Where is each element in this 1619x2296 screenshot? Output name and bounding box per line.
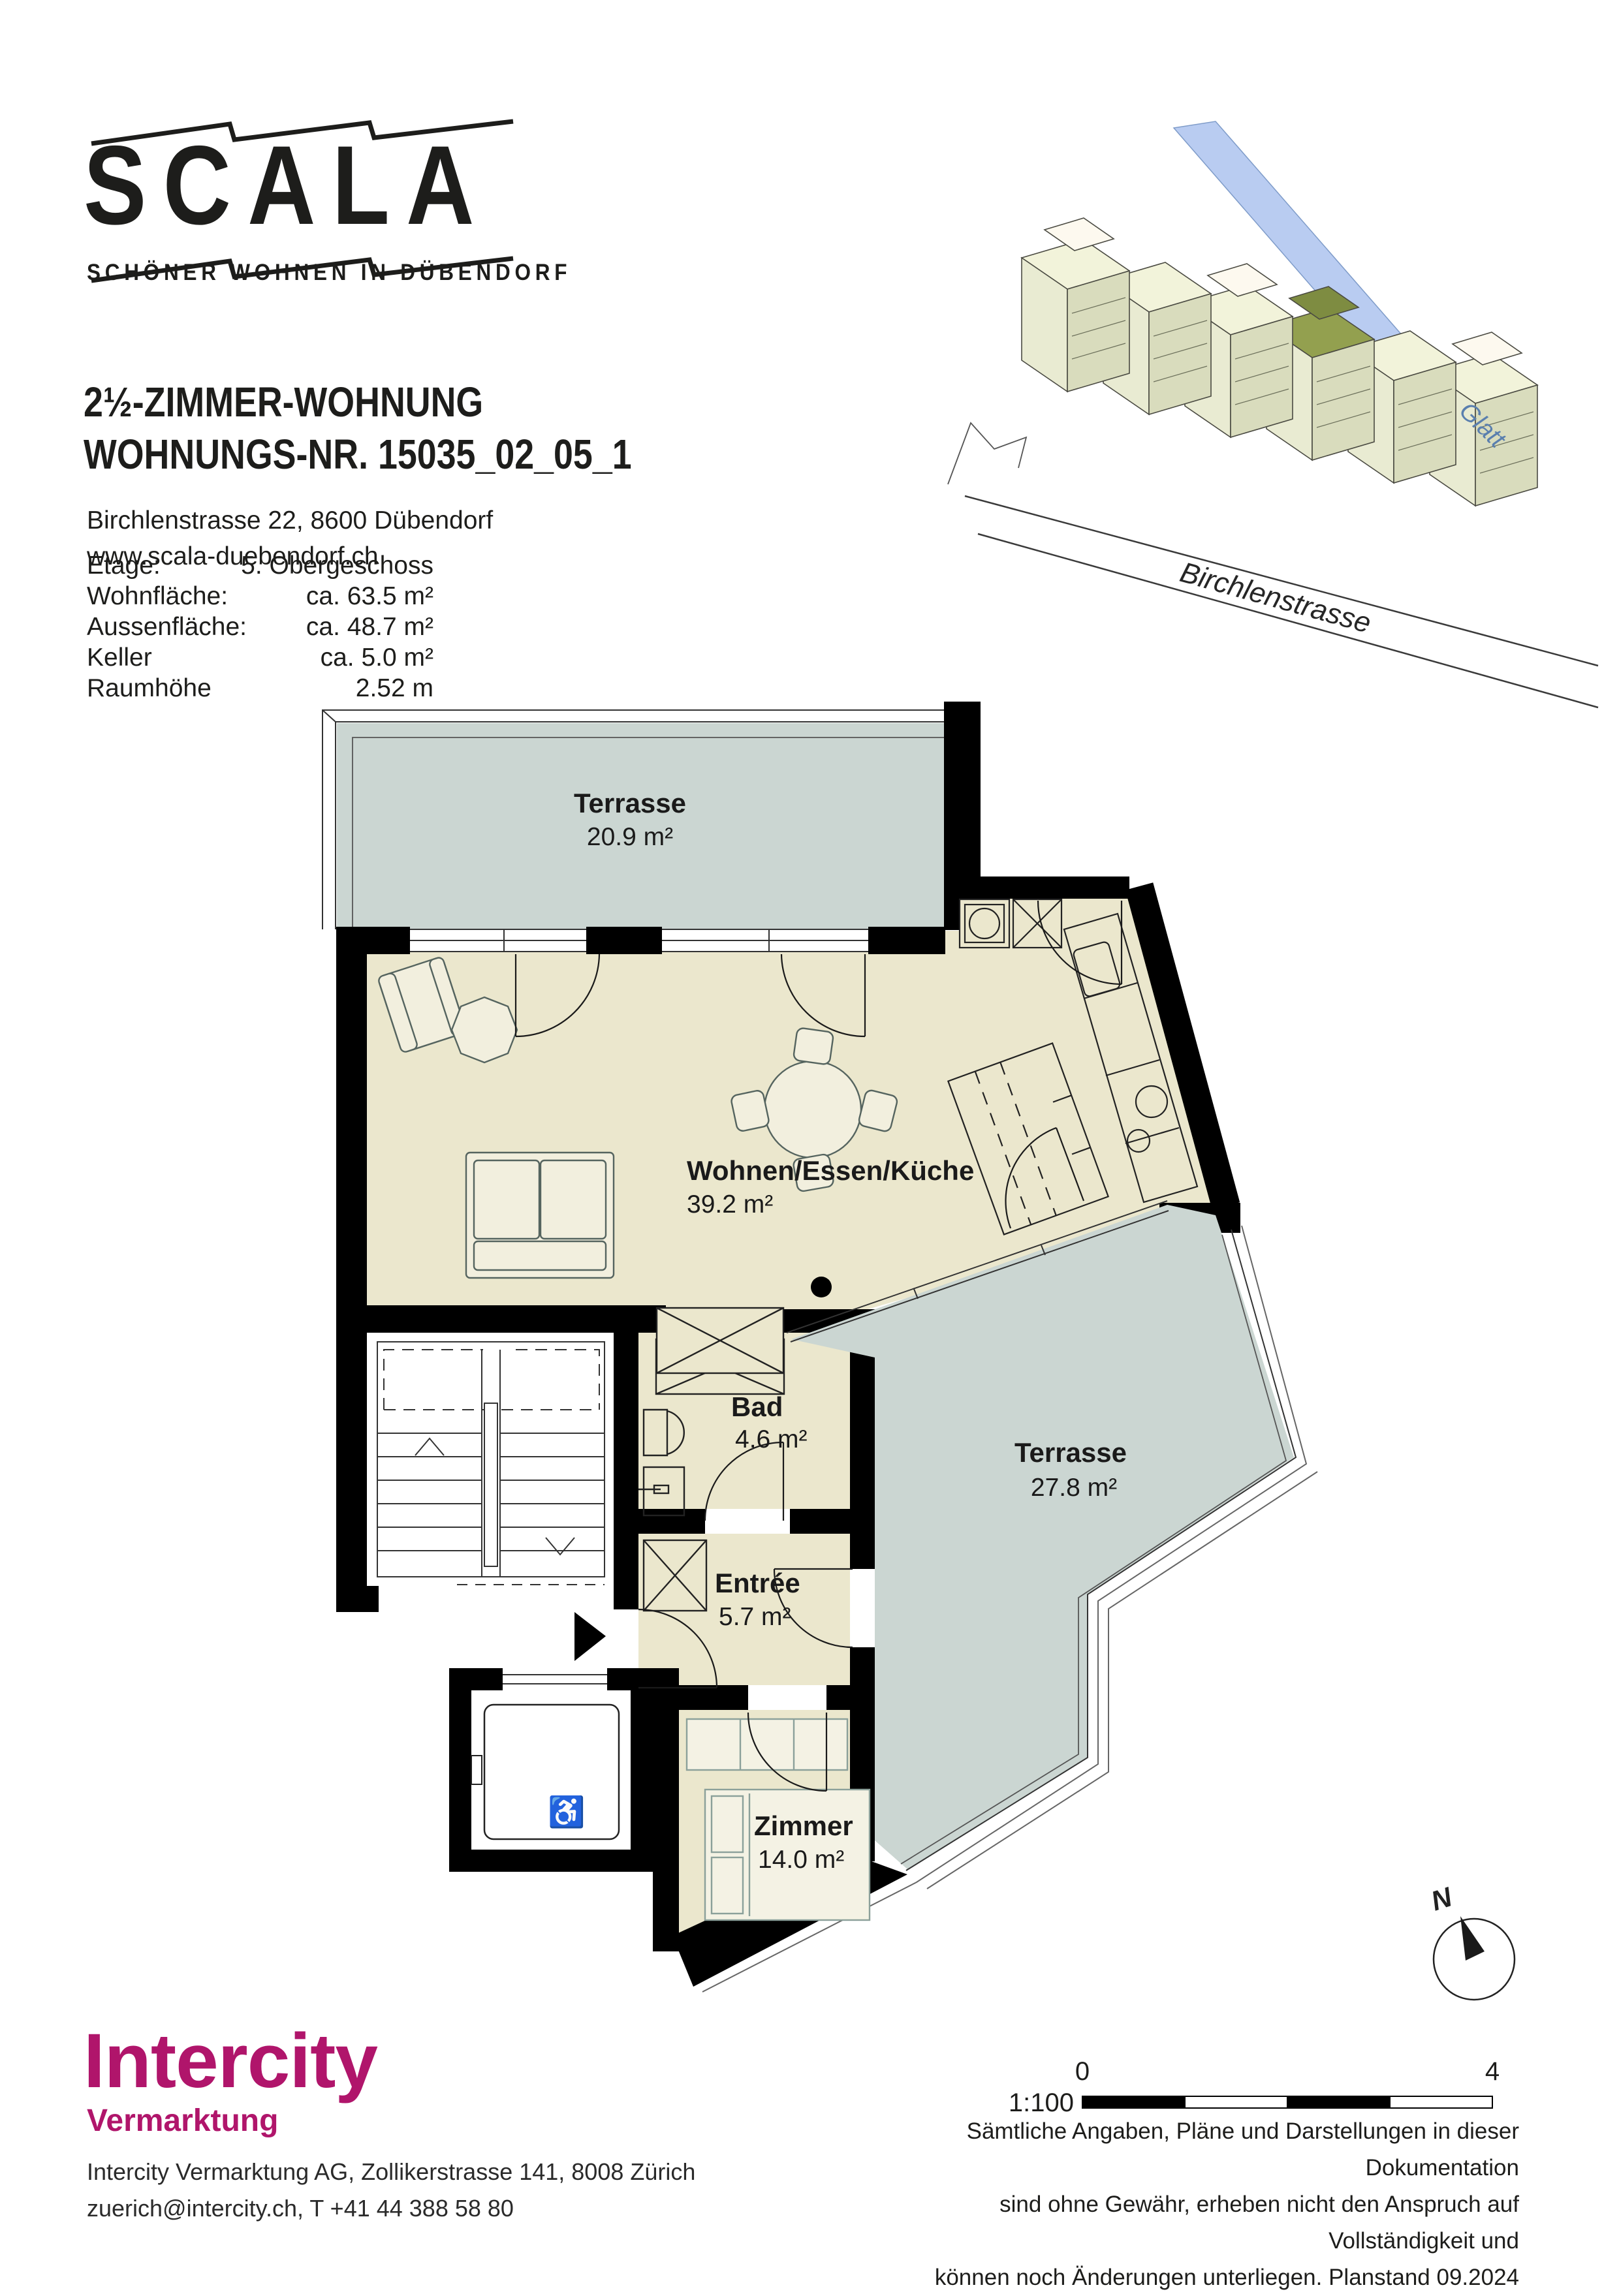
page-title: 2½-ZIMMER-WOHNUNG WOHNUNGS-NR. 15035_02_… — [84, 376, 736, 480]
scale-start-label: 0 — [1064, 2057, 1101, 2087]
page-graphics: Glatt Birchlenstrasse — [0, 0, 1619, 2289]
wheelchair-icon: ♿ — [548, 1795, 585, 1829]
detail-value: ca. 63.5 m² — [306, 581, 433, 612]
detail-row-aussenflaeche: Aussenfläche: ca. 48.7 m² — [87, 612, 433, 642]
detail-value: 2.52 m — [356, 673, 433, 704]
wall — [586, 927, 662, 954]
wall — [336, 927, 367, 1586]
area-bad: 4.6 m² — [735, 1425, 808, 1453]
label-terrasse-top: Terrasse — [574, 788, 686, 818]
address-line: Birchlenstrasse 22, 8600 Dübendorf — [87, 503, 493, 538]
living-closet — [657, 1308, 783, 1373]
area-entree: 5.7 m² — [719, 1603, 791, 1631]
intercity-logo: Intercity — [84, 2017, 377, 2105]
intercity-address-line1: Intercity Vermarktung AG, Zollikerstrass… — [87, 2154, 695, 2190]
scale-end-label: 4 — [1474, 2057, 1511, 2087]
scale-bar — [1082, 2096, 1492, 2108]
entree-closet — [644, 1540, 706, 1611]
area-terrasse-main: 27.8 m² — [1031, 1474, 1117, 1502]
detail-row-raumhoehe: Raumhöhe 2.52 m — [87, 673, 433, 704]
intercity-sub-logo: Vermarktung — [87, 2103, 278, 2139]
detail-value: ca. 48.7 m² — [306, 612, 433, 642]
label-entree: Entrée — [715, 1568, 800, 1598]
wall — [653, 1710, 679, 1951]
intercity-address-line2: zuerich@intercity.ch, T +41 44 388 58 80 — [87, 2190, 695, 2227]
label-zimmer: Zimmer — [754, 1810, 853, 1841]
intercity-address: Intercity Vermarktung AG, Zollikerstrass… — [87, 2154, 695, 2227]
detail-label: Etage: — [87, 550, 161, 581]
area-terrasse-top: 20.9 m² — [587, 823, 673, 851]
scala-tagline: SCHÖNER WOHNEN IN DÜBENDORF — [87, 260, 625, 286]
stairwell — [367, 1333, 614, 1586]
detail-value: 5. Obergeschoss — [241, 550, 433, 581]
detail-row-keller: Keller ca. 5.0 m² — [87, 642, 433, 673]
wall — [868, 927, 945, 954]
details-table: Etage: 5. Obergeschoss Wohnfläche: ca. 6… — [87, 550, 433, 704]
wall — [336, 1305, 666, 1333]
elevator: ♿ — [449, 1668, 653, 1872]
area-zimmer: 14.0 m² — [758, 1846, 844, 1874]
detail-label: Wohnfläche: — [87, 581, 228, 612]
disclaimer: Sämtliche Angaben, Pläne und Darstellung… — [866, 2113, 1519, 2296]
entrance-arrow-icon — [574, 1612, 606, 1661]
title-line1: 2½-ZIMMER-WOHNUNG — [84, 376, 483, 428]
label-wohnen: Wohnen/Essen/Küche — [687, 1155, 974, 1186]
area-wohnen: 39.2 m² — [687, 1190, 773, 1218]
column — [811, 1277, 832, 1297]
detail-label: Raumhöhe — [87, 673, 212, 704]
disclaimer-line3: können noch Änderungen unterliegen. Plan… — [866, 2259, 1519, 2296]
detail-label: Keller — [87, 642, 152, 673]
title-line2: WOHNUNGS-NR. 15035_02_05_1 — [84, 428, 632, 480]
wall — [850, 1333, 875, 1710]
scala-logo: SCALA — [84, 121, 568, 250]
detail-value: ca. 5.0 m² — [321, 642, 433, 673]
label-bad: Bad — [731, 1391, 783, 1422]
site-plan: Glatt Birchlenstrasse — [948, 121, 1598, 707]
detail-label: Aussenfläche: — [87, 612, 247, 642]
compass: N — [1427, 1881, 1515, 2000]
disclaimer-line2: sind ohne Gewähr, erheben nicht den Ansp… — [866, 2186, 1519, 2259]
disclaimer-line1: Sämtliche Angaben, Pläne und Darstellung… — [866, 2113, 1519, 2186]
detail-row-wohnflaeche: Wohnfläche: ca. 63.5 m² — [87, 581, 433, 612]
label-terrasse-main: Terrasse — [1014, 1437, 1127, 1468]
wall — [954, 877, 1129, 899]
detail-row-etage: Etage: 5. Obergeschoss — [87, 550, 433, 581]
wall — [336, 1586, 379, 1612]
floor-plan: ♿ — [322, 702, 1317, 1992]
compass-n-label: N — [1427, 1881, 1456, 1917]
